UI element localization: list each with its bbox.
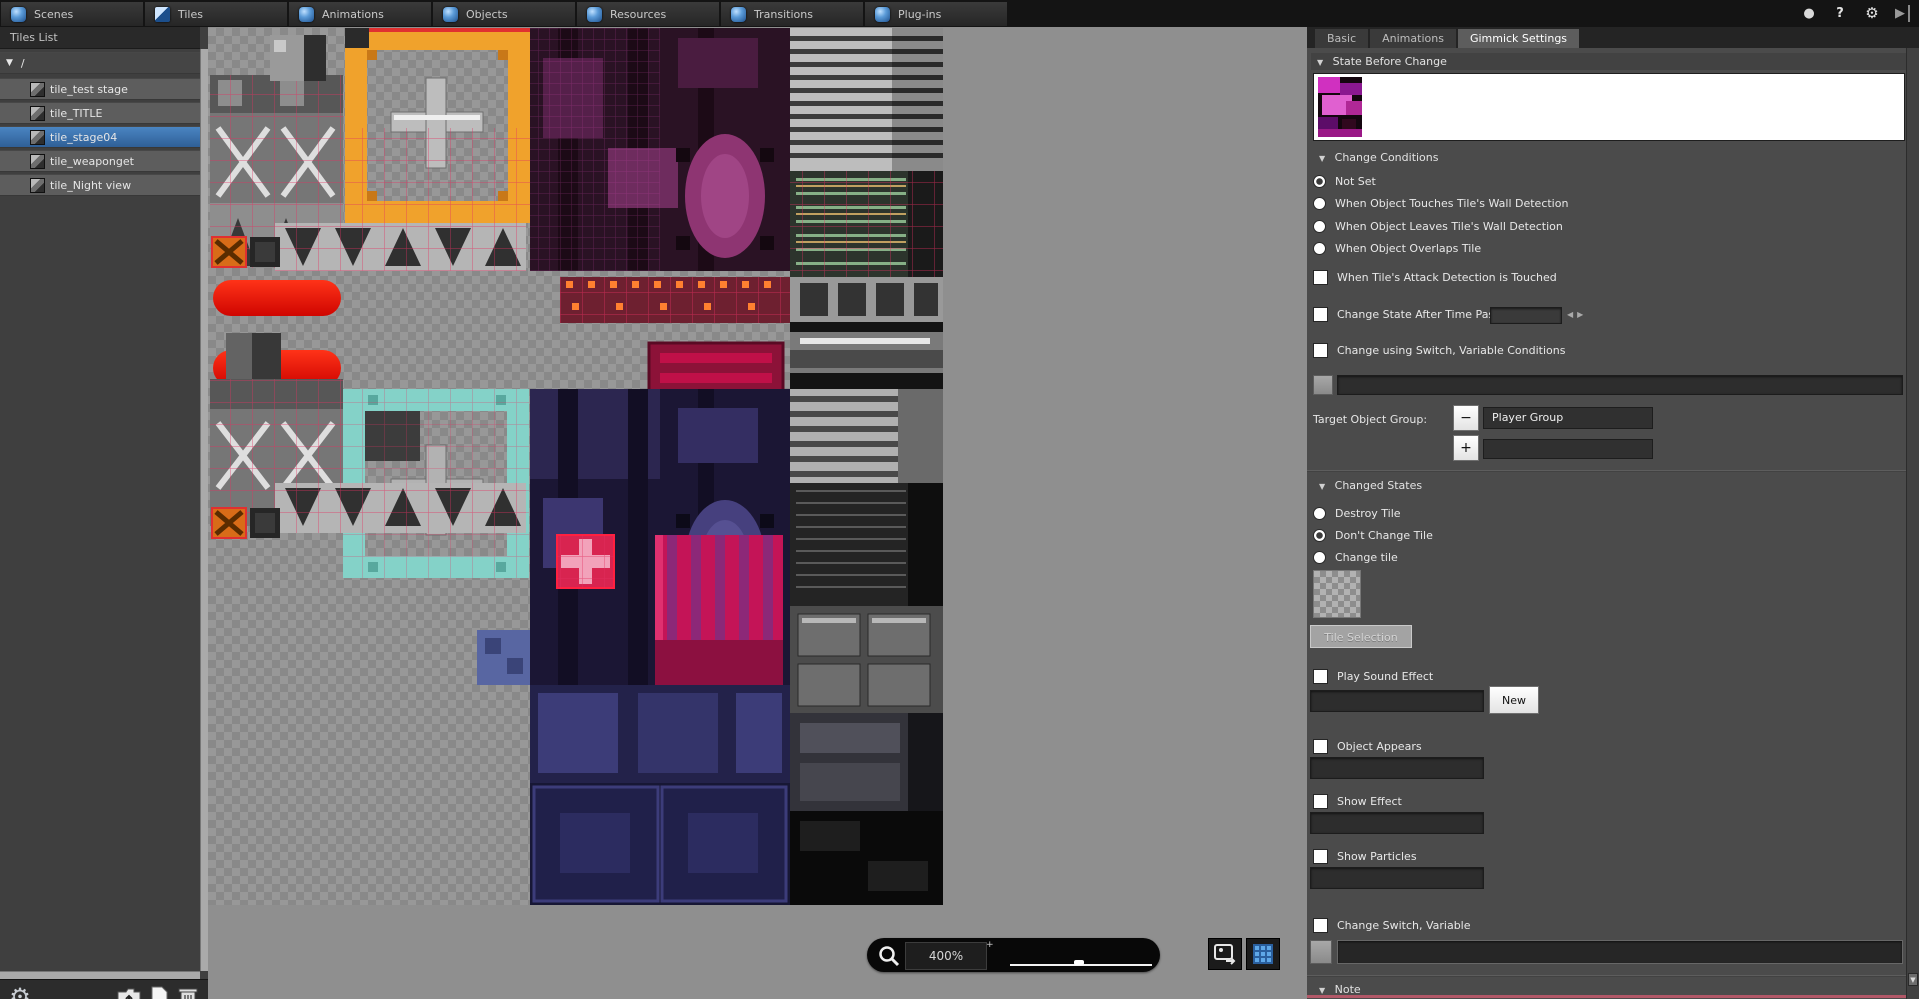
menu-tab-label: Resources [610,8,666,21]
magenta-block-tile [655,535,783,685]
sound-effect-field[interactable] [1310,690,1484,712]
orange-x-tile-top [212,237,280,267]
checkbox-icon[interactable] [1313,669,1328,684]
remove-group-button[interactable]: − [1453,405,1479,431]
collapse-triangle-icon: ▼ [1319,154,1325,163]
checkbox-icon[interactable] [1313,849,1328,864]
gray-chip-tile [270,35,326,81]
export-image-icon [1213,943,1237,965]
tree-item-label: tile_Night view [50,179,131,192]
tile-before-thumbnail [1318,77,1362,137]
help-icon[interactable]: ? [1833,5,1847,22]
panel-tab-bar: Basic Animations Gimmick Settings [1307,27,1919,48]
state-before-change-box[interactable] [1313,73,1905,141]
grid-toggle-button[interactable] [1246,938,1280,970]
tree-item-label: tile_TITLE [50,107,102,120]
orange-x-tile-bottom [212,508,280,538]
switch-picker-button[interactable] [1310,940,1332,964]
trash-icon[interactable] [174,983,202,999]
section-title: Change Conditions [1335,151,1439,164]
checkbox-icon[interactable] [1313,739,1328,754]
menu-tab-scenes[interactable]: Scenes [1,2,143,26]
radio-icon[interactable] [1313,242,1326,255]
checkbox-object-appears[interactable]: Object Appears [1313,738,1422,754]
gear-icon[interactable]: ⚙ [1862,5,1882,22]
checkbox-icon[interactable] [1313,918,1328,933]
new-page-icon[interactable] [146,983,172,999]
spin-right-icon: ▶ [1577,310,1587,319]
menu-tab-tiles[interactable]: Tiles [145,2,287,26]
radio-change-tile[interactable]: Change tile [1313,549,1398,565]
scenes-icon [11,7,26,22]
menu-tab-label: Scenes [34,8,73,21]
section-change-conditions[interactable]: ▼ Change Conditions [1319,151,1439,164]
radio-icon[interactable] [1313,220,1326,233]
radio-icon[interactable] [1313,175,1326,188]
checkbox-play-sound-effect[interactable]: Play Sound Effect [1313,668,1433,684]
menu-tab-objects[interactable]: Objects [433,2,575,26]
condition-summary-field[interactable] [1337,375,1903,395]
menu-tab-resources[interactable]: Resources [577,2,719,26]
section-divider [1307,975,1919,977]
menu-tab-label: Plug-ins [898,8,941,21]
radio-overlap-tile[interactable]: When Object Overlaps Tile [1313,240,1481,256]
empty-group-select[interactable] [1483,439,1653,459]
tree-root-row[interactable]: ▼ / [0,52,200,74]
sidebar-toolbar: ⚙ [0,979,208,999]
show-particles-field[interactable] [1310,867,1484,889]
add-group-button[interactable]: + [1453,435,1479,461]
tile-settings-panel: Basic Animations Gimmick Settings ▼ Stat… [1307,27,1919,999]
minus-icon: − [1460,410,1472,426]
section-divider [1307,470,1919,472]
change-tile-preview[interactable] [1313,570,1361,618]
tree-item-tile-title[interactable]: tile_TITLE [0,102,200,124]
maroon-circuit-tiles [530,28,790,271]
tree-item-label: tile_stage04 [50,131,117,144]
time-spinner-field[interactable] [1490,307,1562,324]
plugins-icon [875,7,890,22]
checkbox-show-particles[interactable]: Show Particles [1313,848,1417,864]
orange-dot-tiles-row [560,277,790,323]
checkbox-attack-detection[interactable]: When Tile's Attack Detection is Touched [1313,269,1557,285]
tile-icon [30,82,45,97]
tile-icon [30,130,45,145]
collapse-triangle-icon: ▼ [1319,482,1325,491]
tab-gimmick-settings[interactable]: Gimmick Settings [1458,29,1579,48]
tree-item-tile-weaponget[interactable]: tile_weaponget [0,150,200,172]
section-title: Changed States [1335,479,1422,492]
tile-icon [30,178,45,193]
dark-chip-tile [226,333,281,379]
switch-summary-field[interactable] [1337,940,1903,964]
menu-tab-transitions[interactable]: Transitions [721,2,863,26]
radio-icon[interactable] [1313,529,1326,542]
tileset-art [208,28,943,905]
note-highlight-line [1307,995,1906,998]
animations-icon [299,7,314,22]
menu-tab-label: Objects [466,8,508,21]
orange-frame-tiles [345,28,530,223]
zoom-plus-icon[interactable]: + [986,940,996,950]
section-title: State Before Change [1333,55,1447,68]
target-group-select[interactable]: Player Group [1483,407,1653,429]
tile-icon [30,106,45,121]
tree-item-label: tile_weaponget [50,155,134,168]
tiles-list-header: Tiles List [0,27,200,49]
tree-item-tile-night-view[interactable]: tile_Night view [0,174,200,196]
target-object-group-label: Target Object Group: [1313,413,1427,426]
grid-icon [1252,943,1274,965]
bottom-blue-tiles [530,783,790,905]
tab-basic[interactable]: Basic [1315,29,1368,48]
objects-icon [443,7,458,22]
zoom-value-field[interactable]: 400% [905,942,987,970]
menu-tab-plugins[interactable]: Plug-ins [865,2,1007,26]
show-effect-field[interactable] [1310,812,1484,834]
tree-item-tile-stage04[interactable]: tile_stage04 [0,126,200,148]
collapse-triangle-icon: ▼ [1317,58,1323,67]
tile-editor-canvas[interactable]: 400% + [208,27,1307,999]
menu-tab-label: Animations [322,8,384,21]
checkbox-change-switch-variable[interactable]: Change Switch, Variable [1313,917,1471,933]
radio-destroy-tile[interactable]: Destroy Tile [1313,505,1401,521]
radio-dont-change-tile[interactable]: Don't Change Tile [1313,527,1433,543]
scrollbar-down-arrow[interactable]: ▼ [1908,973,1918,986]
tile-icon [30,154,45,169]
tiles-icon [155,7,170,22]
checkbox-show-effect[interactable]: Show Effect [1313,793,1402,809]
object-appears-field[interactable] [1310,757,1484,779]
checkbox-icon[interactable] [1313,270,1328,285]
zoom-toolbar: 400% + [867,938,1160,972]
tree-item-label: tile_test stage [50,83,128,96]
menu-tab-label: Tiles [178,8,203,21]
top-menu-bar: Scenes Tiles Animations Objects Resource… [0,0,1919,27]
radio-touch-wall[interactable]: When Object Touches Tile's Wall Detectio… [1313,195,1568,211]
transitions-icon [731,7,746,22]
app-window: Scenes Tiles Animations Objects Resource… [0,0,1919,999]
panel-vertical-scrollbar[interactable]: ▼ [1906,48,1919,999]
checkbox-icon[interactable] [1313,307,1328,322]
radio-icon[interactable] [1313,507,1326,520]
magnifier-icon [878,945,900,967]
section-state-before-change[interactable]: ▼ State Before Change [1311,53,1915,70]
checkbox-switch-variable-conditions[interactable]: Change using Switch, Variable Conditions [1313,342,1565,358]
triangle-tiles-row-bottom [275,483,526,533]
tree-item-tile-test-stage[interactable]: tile_test stage [0,78,200,100]
pink-cross-tile [557,535,614,588]
lamp-icon[interactable]: ● [1800,5,1818,22]
menu-tab-label: Transitions [754,8,813,21]
new-sound-button[interactable]: New [1489,686,1539,714]
red-pill-tile-1 [213,280,341,316]
radio-not-set[interactable]: Not Set [1313,173,1376,189]
radio-icon[interactable] [1313,551,1326,564]
spin-left-icon: ◀ [1567,310,1577,319]
collapse-triangle-icon: ▼ [1319,986,1325,995]
export-image-button[interactable] [1208,938,1242,970]
tree-root-label: / [21,57,25,70]
menu-tab-animations[interactable]: Animations [289,2,431,26]
radio-leave-wall[interactable]: When Object Leaves Tile's Wall Detection [1313,218,1563,234]
tiles-list-sidebar: Tiles List ▼ / tile_test stage tile_TITL… [0,27,208,999]
section-changed-states[interactable]: ▼ Changed States [1319,479,1422,492]
checkbox-icon[interactable] [1313,794,1328,809]
play-collapse-icon[interactable]: ▶ [1892,5,1910,22]
spinner-arrows[interactable]: ◀▶ [1567,310,1587,319]
collapse-triangle-icon[interactable]: ▼ [6,58,13,68]
checkbox-time-passes[interactable]: Change State After Time Passes [1313,306,1512,322]
checkbox-icon[interactable] [1313,343,1328,358]
tileset-canvas[interactable] [208,28,943,905]
settings-gear-icon[interactable]: ⚙ [4,983,36,999]
right-column-tiles [790,28,943,905]
condition-picker-button[interactable] [1313,375,1333,395]
zoom-slider-handle[interactable] [1074,960,1084,965]
plus-icon: + [1460,440,1472,456]
folder-up-icon[interactable] [114,983,144,999]
tab-animations[interactable]: Animations [1370,29,1456,48]
triangle-tiles-row-top [275,223,526,271]
resources-icon [587,7,602,22]
tile-selection-button[interactable]: Tile Selection [1310,625,1412,648]
radio-icon[interactable] [1313,197,1326,210]
